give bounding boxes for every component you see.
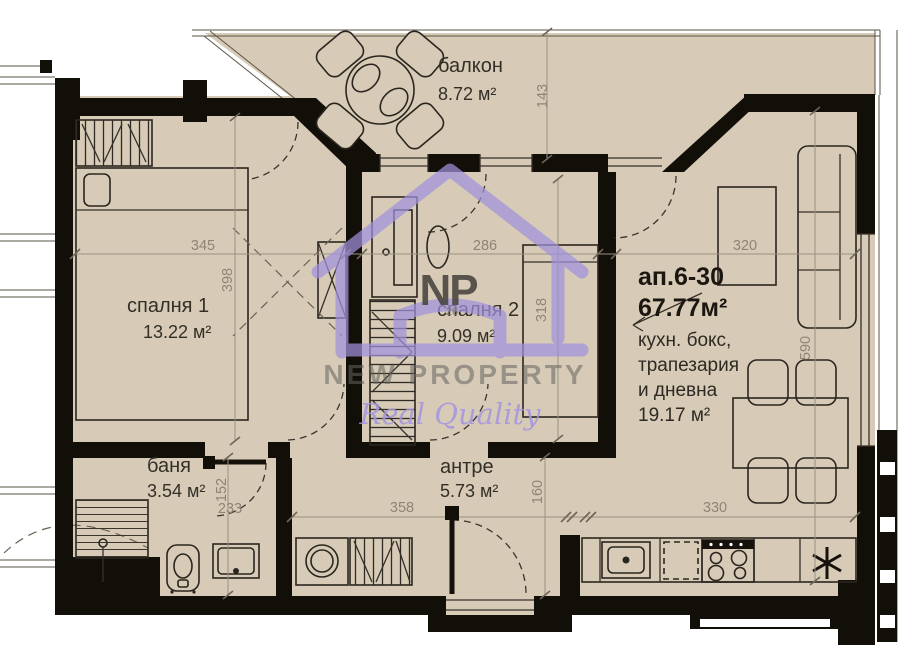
hallway-wardrobe xyxy=(350,538,412,585)
bedroom1-wardrobe xyxy=(76,120,152,166)
living-name-3: и дневна xyxy=(638,380,718,401)
watermark-monogram-number: 26 xyxy=(446,306,458,318)
bathroom-area: 3.54 м² xyxy=(147,481,205,501)
dim-hallway-depth: 160 xyxy=(530,480,546,504)
chair xyxy=(796,458,836,503)
dim-living-upper-width: 320 xyxy=(733,238,757,254)
dim-bathroom-depth: 152 xyxy=(214,478,230,502)
dim-bathroom-width: 233 xyxy=(218,501,242,517)
bedroom1-area: 13.22 м² xyxy=(143,322,211,342)
dim-living-depth: 590 xyxy=(798,336,814,360)
floor-plan-canvas: балкон 8.72 м² спалня 1 13.22 м² спалня … xyxy=(0,0,900,645)
bedroom1-name: спалня 1 xyxy=(127,295,209,317)
balcony-area: 8.72 м² xyxy=(438,84,496,104)
living-area: 19.17 м² xyxy=(638,405,710,426)
dim-bedroom1-depth: 398 xyxy=(220,268,236,292)
dim-balcony-depth: 143 xyxy=(535,84,551,108)
watermark-brand: NEW PROPERTY xyxy=(323,359,586,390)
living-name-1: кухн. бокс, xyxy=(638,330,731,351)
dim-bedroom2-bed-depth: 318 xyxy=(534,298,550,322)
chair xyxy=(748,458,788,503)
dim-hallway-width: 358 xyxy=(390,500,414,516)
dim-bedroom2-width: 286 xyxy=(473,238,497,254)
toilet xyxy=(167,545,199,594)
watermark-tagline: Real Quality xyxy=(358,397,541,431)
apartment-area: 67.77м² xyxy=(638,294,727,322)
bedroom1-bed xyxy=(76,168,248,420)
dim-kitchen-width: 330 xyxy=(703,500,727,516)
hallway-name: антре xyxy=(440,456,494,478)
sofa xyxy=(798,146,856,328)
bathroom-name: баня xyxy=(147,455,191,477)
hallway-area: 5.73 м² xyxy=(440,481,498,501)
balcony-name: балкон xyxy=(438,55,503,77)
floor-plan-page: балкон 8.72 м² спалня 1 13.22 м² спалня … xyxy=(0,0,900,645)
balcony-divider-wall xyxy=(183,80,207,122)
bedroom2-area: 9.09 м² xyxy=(437,326,495,346)
apartment-label: ап.6-30 xyxy=(638,263,724,291)
living-name-2: трапезария xyxy=(638,355,739,376)
dim-bedroom1-width: 345 xyxy=(191,238,215,254)
